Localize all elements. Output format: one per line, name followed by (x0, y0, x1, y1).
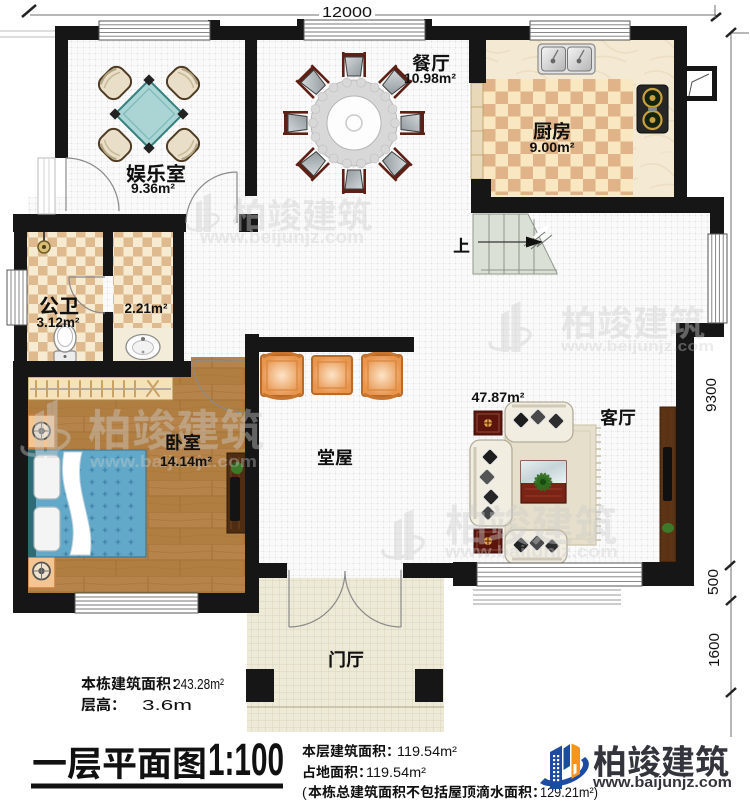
svg-text:1600: 1600 (706, 633, 723, 667)
svg-text:129.21m²): 129.21m²) (540, 784, 598, 800)
svg-text:2.21m²: 2.21m² (125, 300, 168, 316)
svg-text:www.baijunjz.com: www.baijunjz.com (444, 542, 618, 561)
svg-text:www.beijunjz.com: www.beijunjz.com (560, 338, 714, 355)
svg-text:(: ( (302, 784, 307, 800)
svg-text:3.12m²: 3.12m² (37, 314, 80, 330)
svg-text:www.baijunjz.com: www.baijunjz.com (592, 774, 732, 791)
svg-text:500: 500 (705, 569, 722, 595)
svg-text:9.00m²: 9.00m² (530, 139, 575, 155)
svg-text:14.14m²: 14.14m² (160, 453, 212, 469)
svg-text:12000: 12000 (322, 4, 372, 21)
svg-text:47.87m²: 47.87m² (472, 389, 525, 405)
svg-text:119.54m²: 119.54m² (397, 743, 457, 759)
svg-text:www.beijunjz.com: www.beijunjz.com (199, 227, 364, 247)
svg-text:119.54m²: 119.54m² (366, 764, 426, 780)
svg-text:9300: 9300 (703, 378, 720, 412)
svg-text:10.98m²: 10.98m² (404, 70, 456, 86)
svg-text:3.6m: 3.6m (142, 697, 192, 714)
svg-text:243.28m²: 243.28m² (174, 676, 224, 693)
svg-text:1:100: 1:100 (208, 734, 284, 785)
svg-text:9.36m²: 9.36m² (131, 180, 175, 196)
